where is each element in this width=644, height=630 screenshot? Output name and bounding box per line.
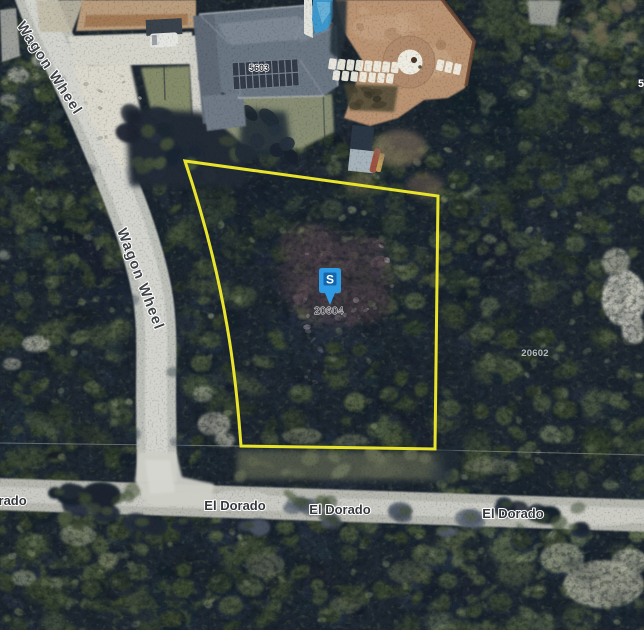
svg-text:El Dorado: El Dorado bbox=[0, 493, 27, 508]
svg-text:El Dorado: El Dorado bbox=[309, 502, 370, 517]
svg-text:5: 5 bbox=[638, 78, 644, 90]
svg-text:20602: 20602 bbox=[521, 348, 548, 359]
svg-text:S: S bbox=[326, 273, 334, 287]
svg-text:El Dorado: El Dorado bbox=[482, 506, 543, 521]
svg-text:20604: 20604 bbox=[314, 306, 344, 317]
svg-text:El Dorado: El Dorado bbox=[204, 498, 265, 513]
svg-text:5603: 5603 bbox=[249, 63, 269, 73]
